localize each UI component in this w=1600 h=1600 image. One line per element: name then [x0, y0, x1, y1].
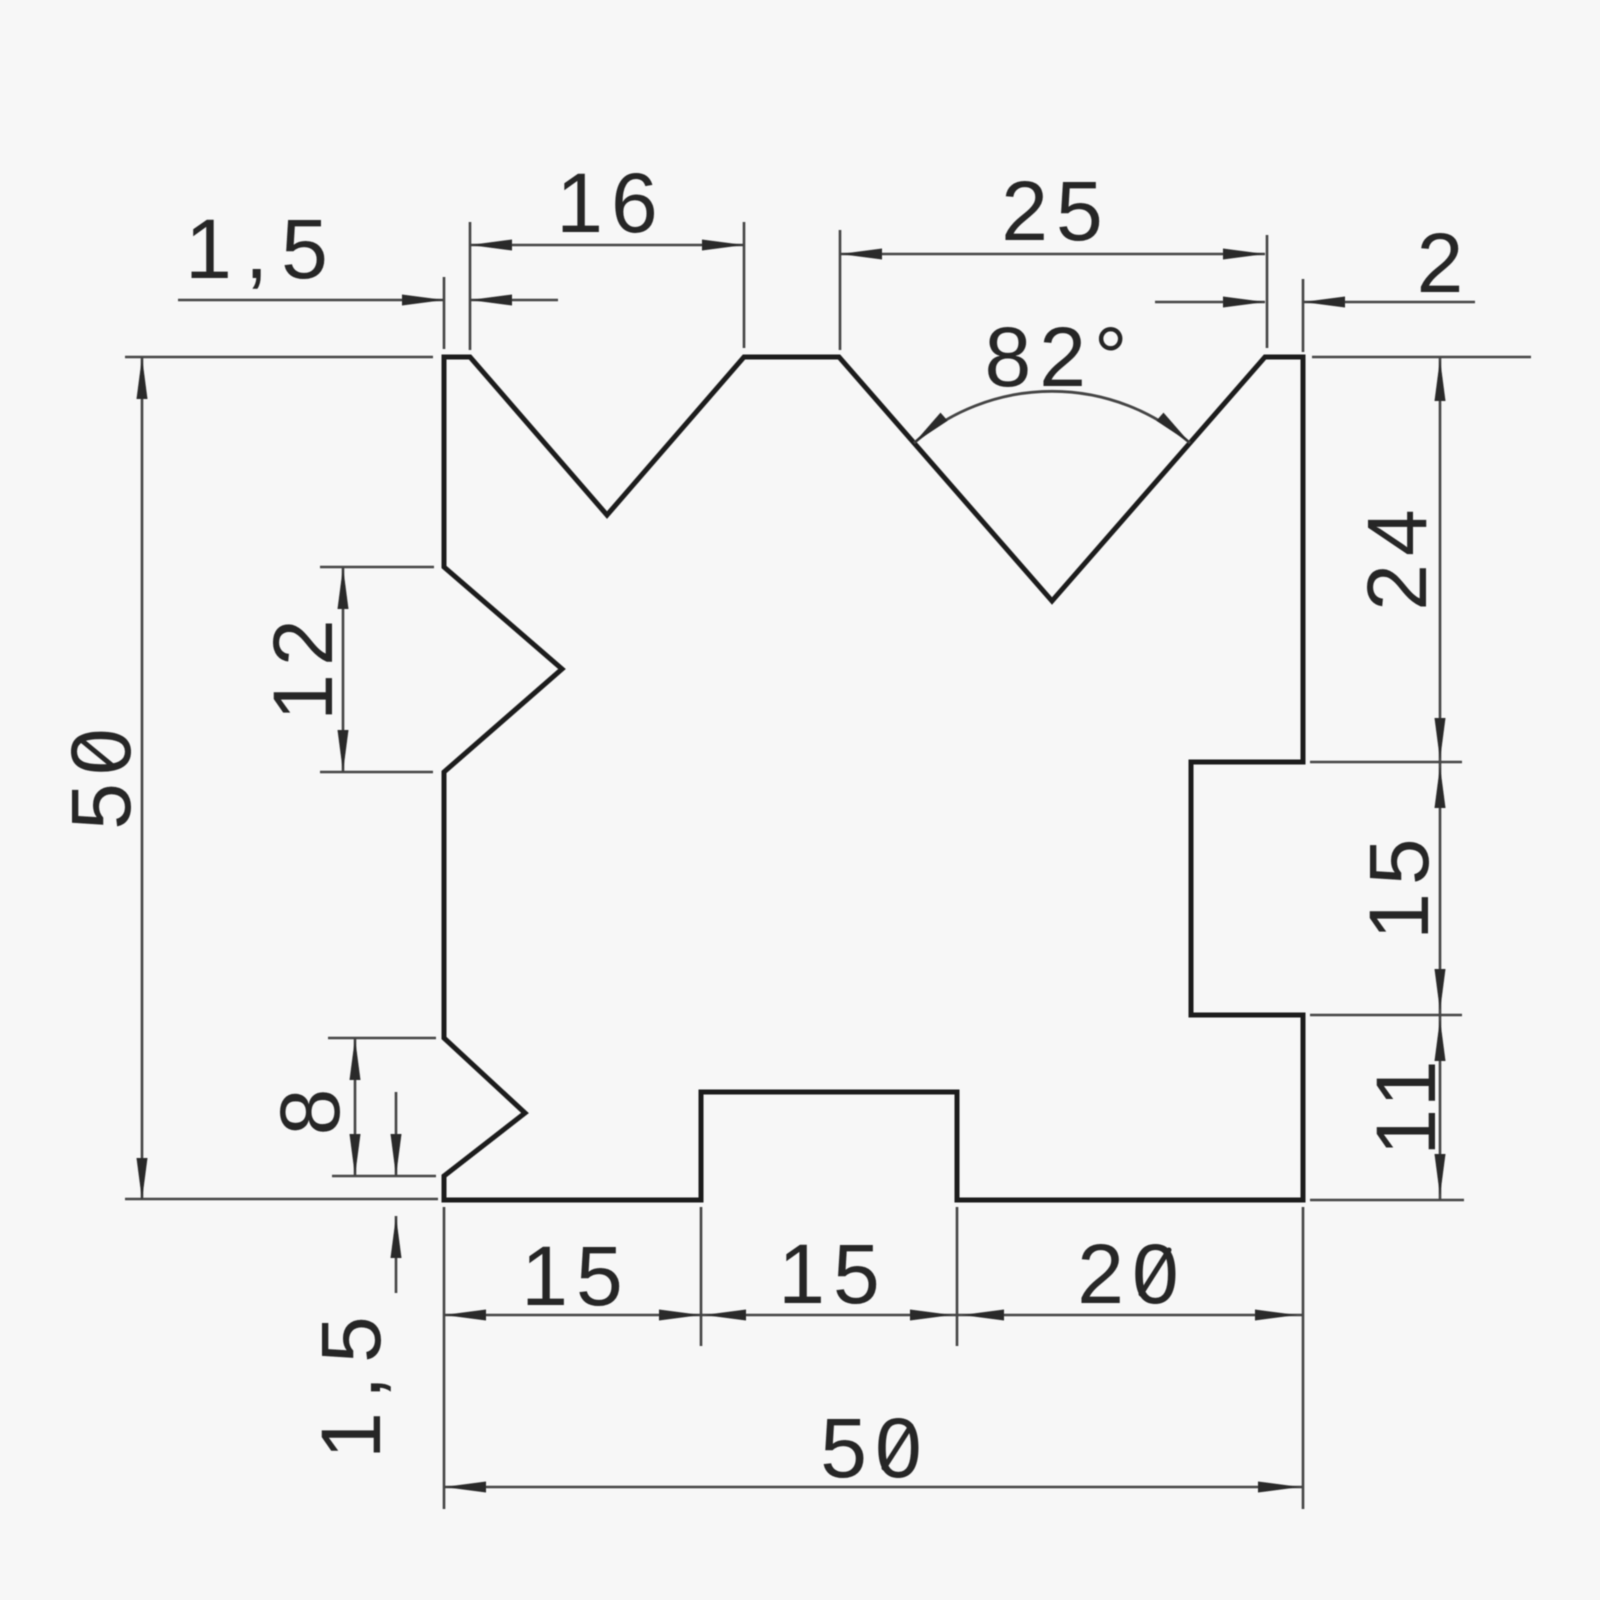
svg-text:50: 50 [820, 1401, 929, 1495]
svg-text:82°: 82° [984, 310, 1135, 404]
svg-text:1,5: 1,5 [185, 202, 341, 296]
svg-text:2: 2 [1417, 216, 1472, 310]
svg-text:11: 11 [1359, 1052, 1453, 1155]
svg-text:20: 20 [1077, 1227, 1186, 1321]
svg-text:50: 50 [54, 720, 148, 829]
svg-text:12: 12 [256, 611, 350, 720]
svg-text:15: 15 [778, 1227, 887, 1321]
svg-text:15: 15 [1352, 830, 1446, 939]
svg-text:8: 8 [263, 1081, 357, 1136]
svg-text:1,5: 1,5 [304, 1303, 398, 1459]
svg-text:25: 25 [1001, 164, 1110, 258]
svg-text:16: 16 [556, 156, 665, 250]
svg-text:24: 24 [1350, 501, 1444, 610]
svg-text:15: 15 [521, 1229, 630, 1323]
